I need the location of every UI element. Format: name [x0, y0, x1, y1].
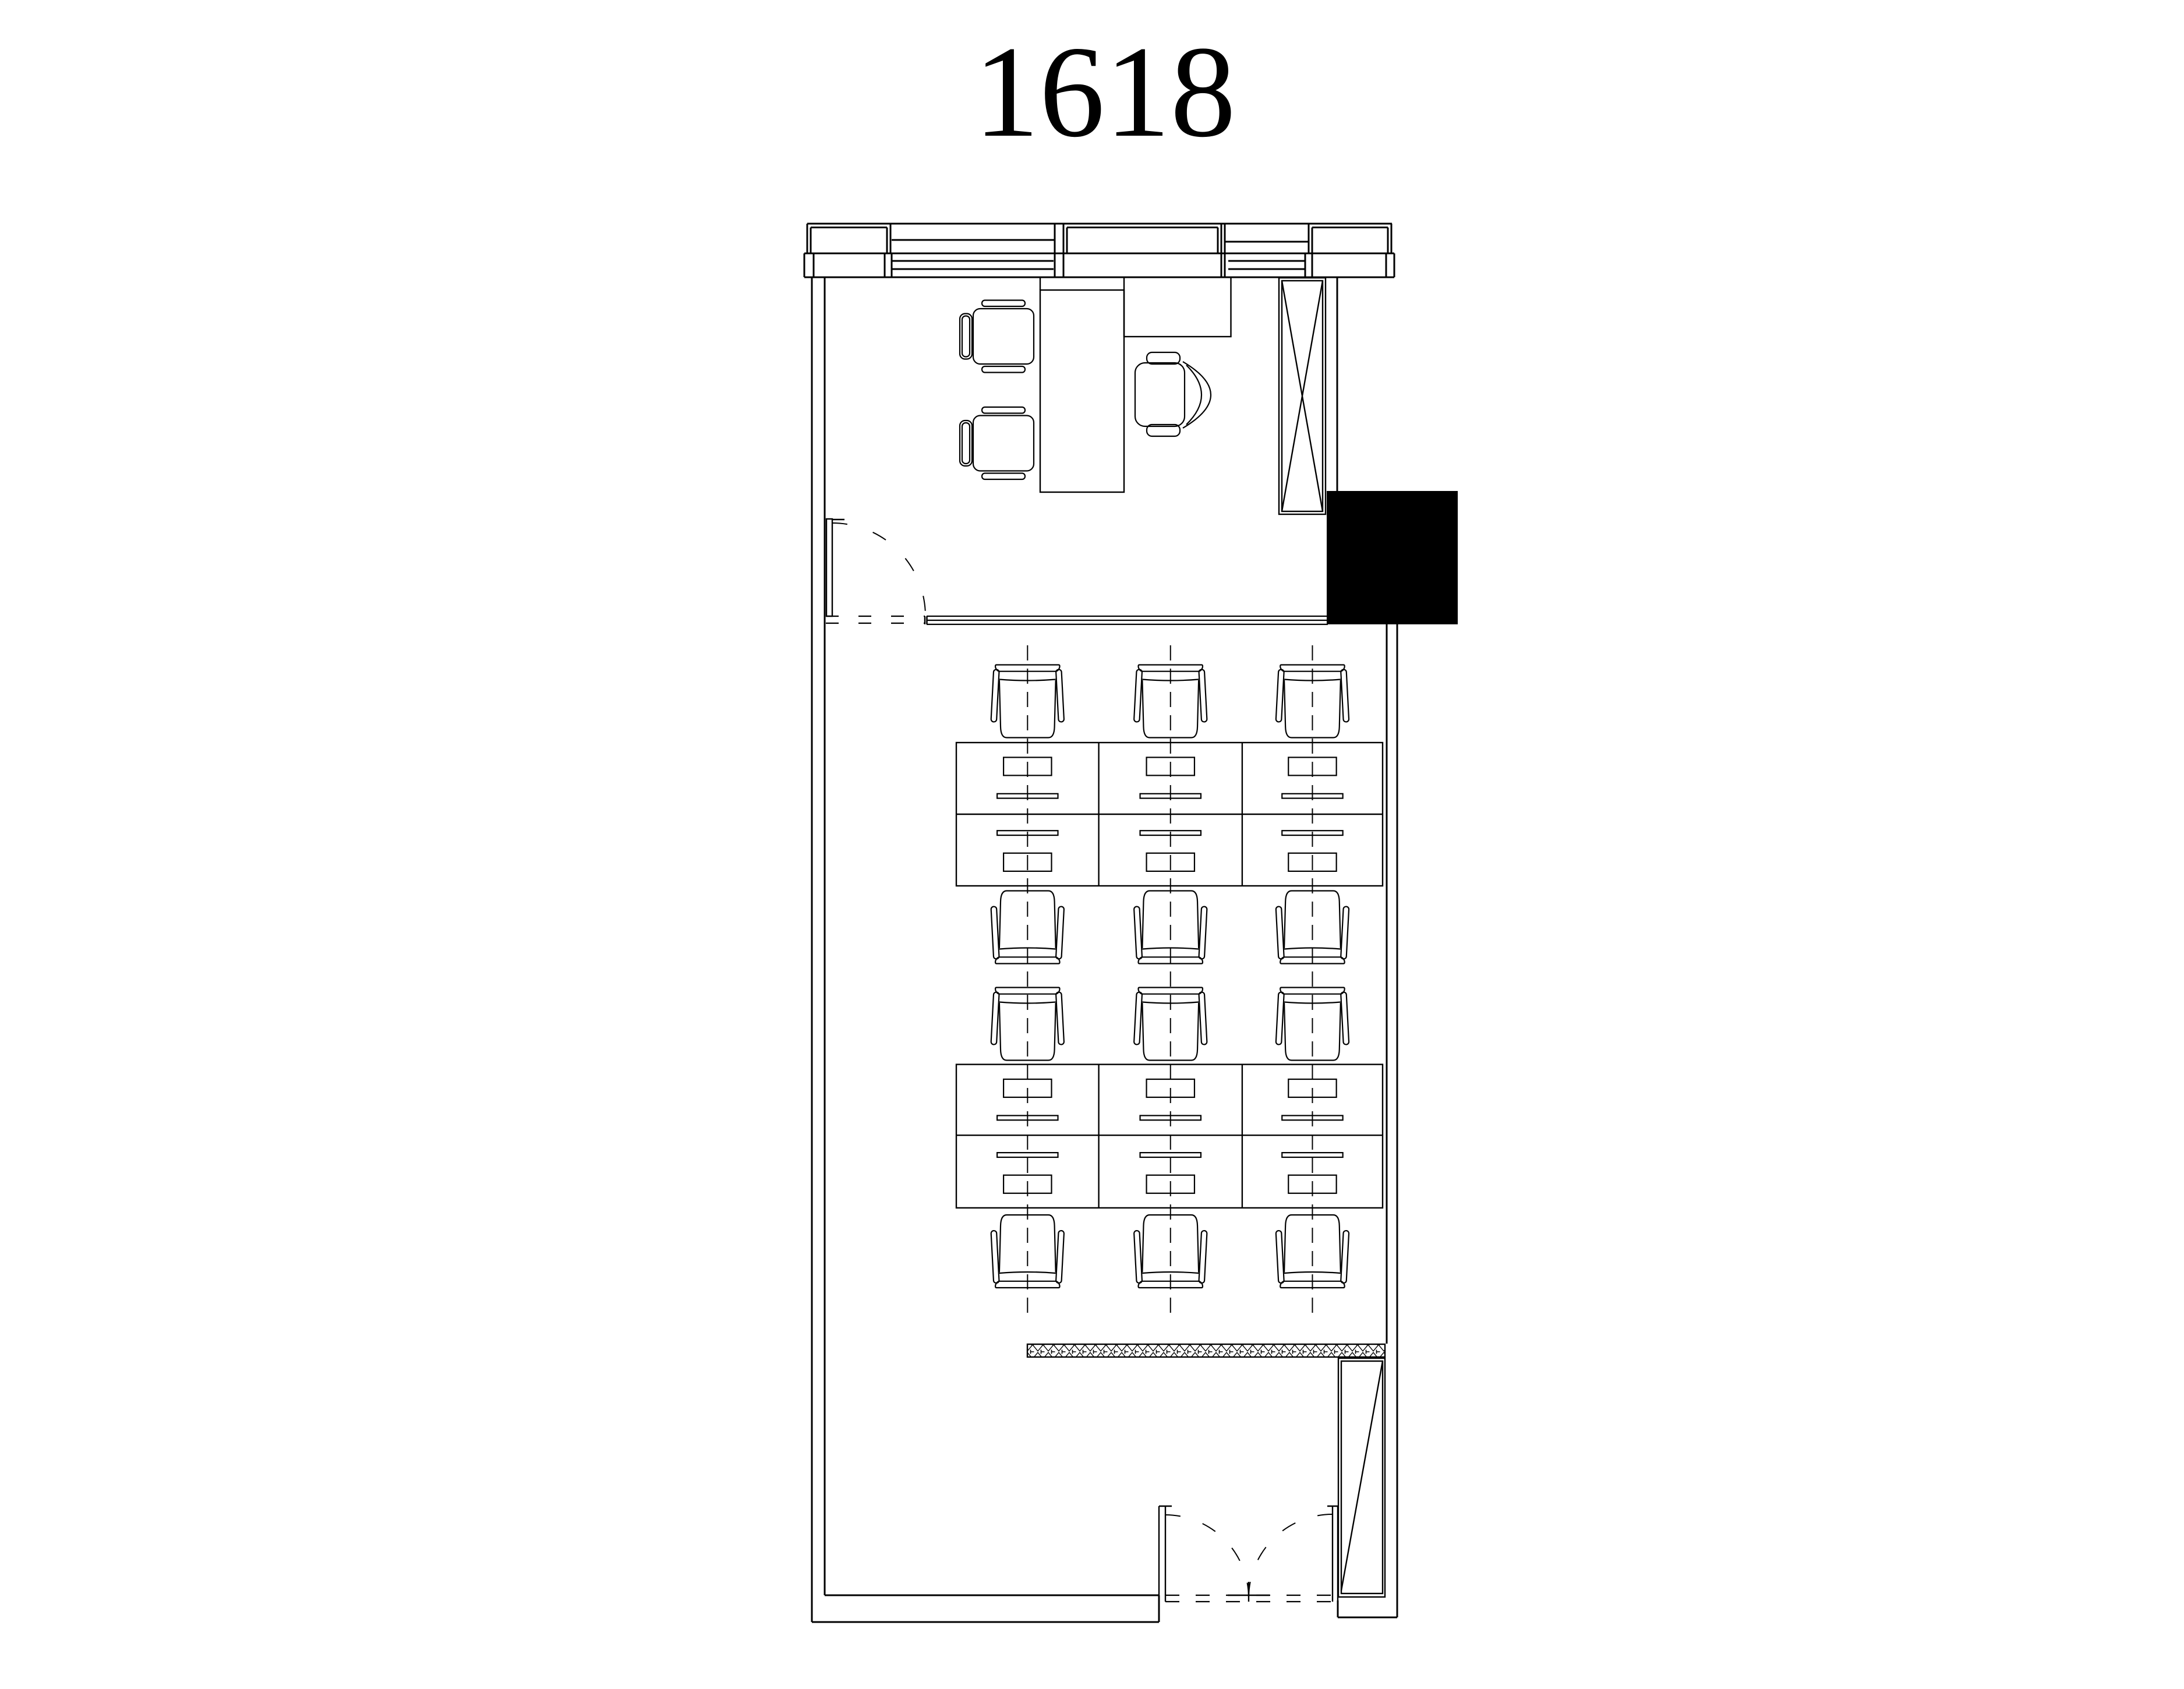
svg-text:1618: 1618 [974, 19, 1236, 164]
